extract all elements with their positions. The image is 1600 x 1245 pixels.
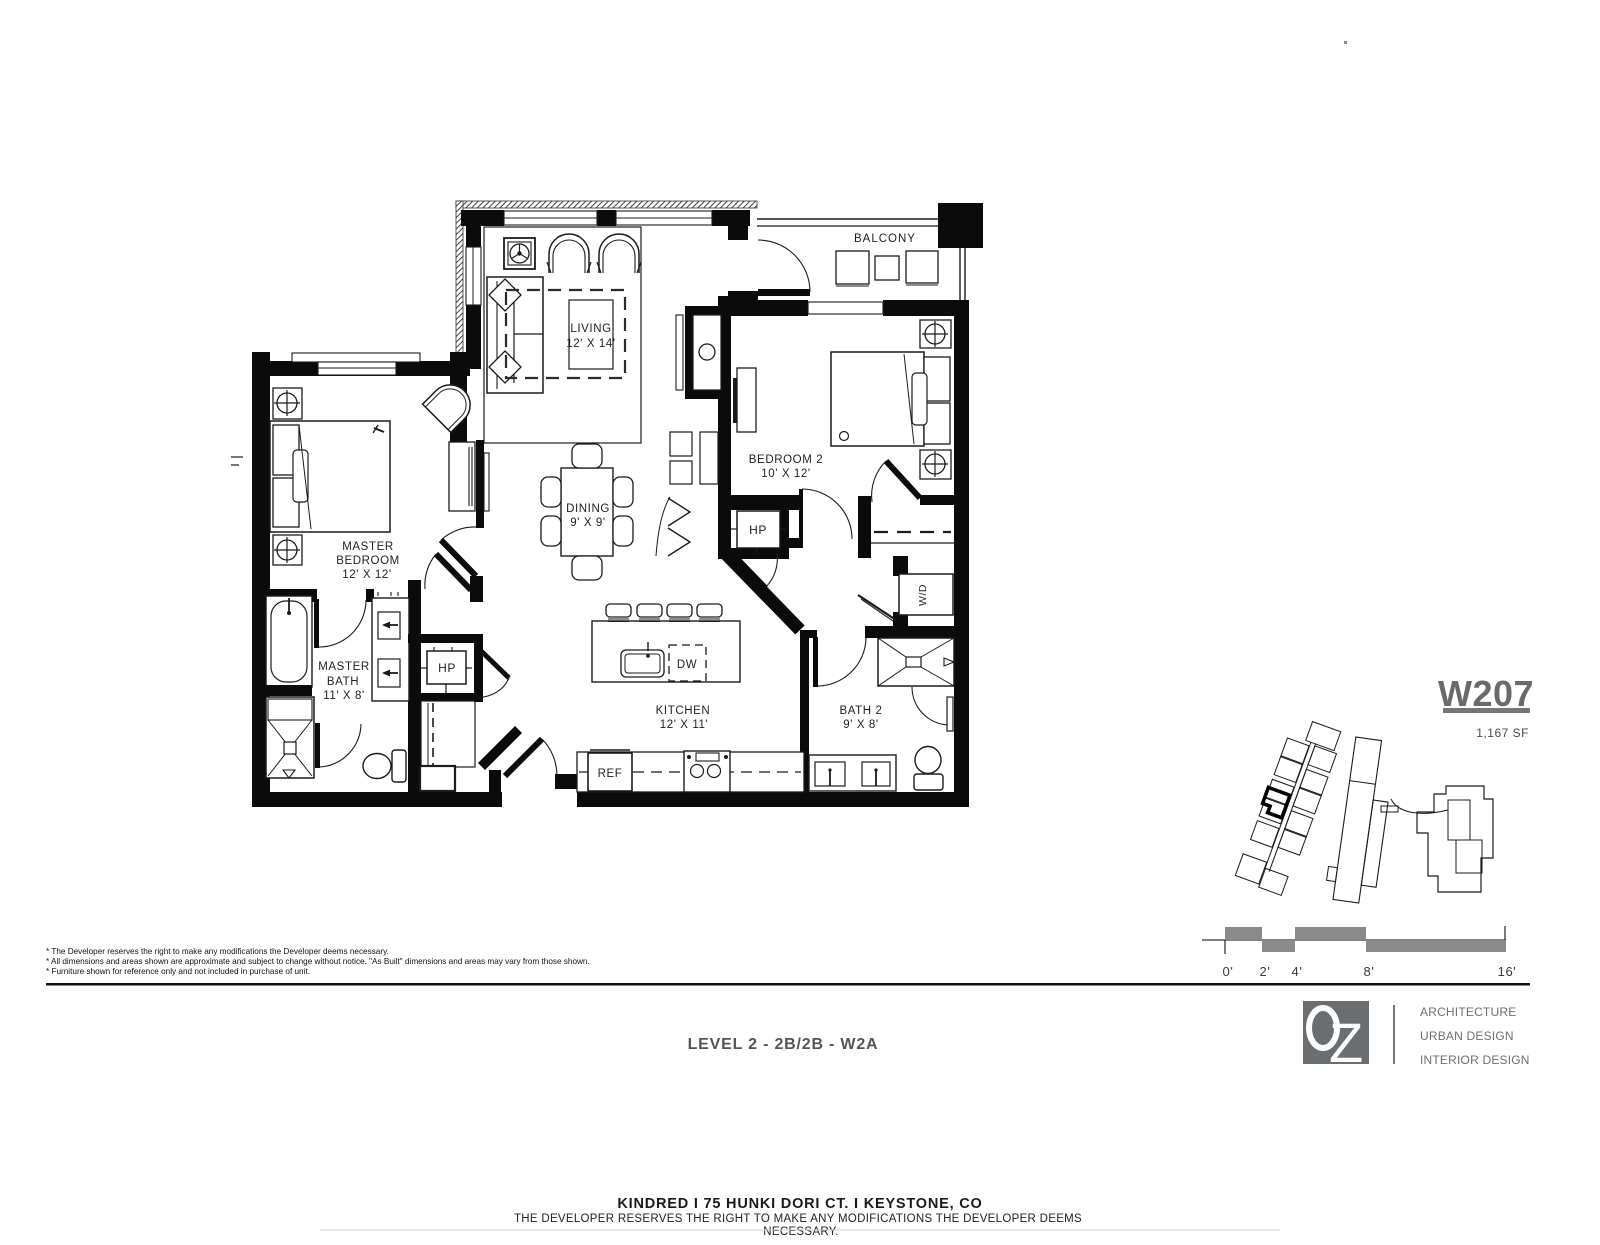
svg-text:HP: HP	[438, 661, 456, 675]
svg-text:THE DEVELOPER RESERVES THE RIG: THE DEVELOPER RESERVES THE RIGHT TO MAKE…	[514, 1213, 1082, 1225]
svg-text:LIVING: LIVING	[570, 323, 611, 335]
svg-text:12' X 14': 12' X 14'	[566, 338, 615, 350]
svg-text:W/D: W/D	[917, 584, 929, 606]
svg-text:16': 16'	[1498, 964, 1517, 979]
svg-text:DINING: DINING	[566, 503, 610, 515]
svg-text:BATH: BATH	[327, 676, 359, 688]
svg-text:HP: HP	[749, 523, 767, 537]
svg-text:ARCHITECTURE: ARCHITECTURE	[1420, 1005, 1516, 1019]
svg-text:BATH 2: BATH 2	[839, 705, 882, 717]
svg-text:MASTER: MASTER	[318, 661, 370, 673]
svg-text:Z: Z	[1329, 1011, 1363, 1074]
svg-text:9' X 8': 9' X 8'	[843, 719, 878, 731]
svg-text:4': 4'	[1292, 964, 1303, 979]
svg-text:BEDROOM 2: BEDROOM 2	[749, 454, 823, 466]
svg-text:NECESSARY.: NECESSARY.	[763, 1226, 838, 1238]
svg-text:2': 2'	[1260, 964, 1271, 979]
svg-text:LEVEL 2 - 2B/2B - W2A: LEVEL 2 - 2B/2B - W2A	[688, 1036, 879, 1053]
svg-text:BEDROOM: BEDROOM	[336, 555, 400, 567]
svg-text:URBAN DESIGN: URBAN DESIGN	[1420, 1029, 1514, 1043]
svg-text:1,167 SF: 1,167 SF	[1476, 726, 1529, 740]
svg-text:* All dimensions and areas sho: * All dimensions and areas shown are app…	[46, 957, 590, 966]
svg-text:11' X 8': 11' X 8'	[323, 690, 365, 702]
svg-text:12' X 11': 12' X 11'	[660, 719, 709, 731]
svg-text:* Furniture shown for referenc: * Furniture shown for reference only and…	[46, 967, 310, 976]
svg-text:12' X 12': 12' X 12'	[342, 569, 391, 581]
svg-text:DW: DW	[677, 659, 697, 671]
svg-text:REF: REF	[598, 768, 623, 780]
svg-text:MASTER: MASTER	[342, 541, 394, 553]
svg-text:BALCONY: BALCONY	[854, 233, 916, 245]
svg-text:8': 8'	[1364, 964, 1375, 979]
svg-text:0': 0'	[1223, 964, 1234, 979]
svg-text:10' X 12': 10' X 12'	[761, 468, 810, 480]
svg-text:KITCHEN: KITCHEN	[656, 705, 711, 717]
svg-text:* The Developer reserves the r: * The Developer reserves the right to ma…	[46, 947, 389, 956]
svg-text:KINDRED I 75 HUNKI DORI CT. I: KINDRED I 75 HUNKI DORI CT. I KEYSTONE, …	[617, 1196, 982, 1212]
svg-text:INTERIOR DESIGN: INTERIOR DESIGN	[1420, 1053, 1530, 1067]
svg-text:W207: W207	[1438, 673, 1534, 714]
svg-text:9' X 9': 9' X 9'	[570, 517, 605, 529]
